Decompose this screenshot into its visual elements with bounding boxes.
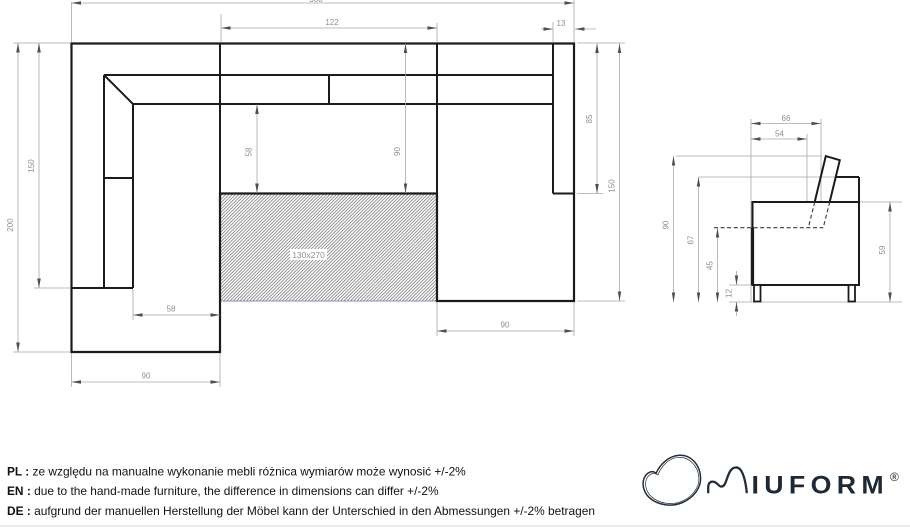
svg-text:85: 85 [585, 114, 594, 123]
svg-text:300: 300 [309, 0, 323, 4]
svg-text:EN : due to the hand-made furn: EN : due to the hand-made furniture, the… [7, 484, 439, 498]
svg-text:90: 90 [142, 372, 151, 381]
svg-text:12: 12 [725, 289, 734, 298]
svg-text:54: 54 [775, 130, 784, 139]
svg-text:®: ® [890, 470, 899, 484]
svg-text:90: 90 [393, 147, 402, 156]
svg-text:IUFORM: IUFORM [752, 472, 890, 500]
svg-text:59: 59 [878, 245, 887, 254]
svg-text:90: 90 [501, 321, 510, 330]
svg-text:58: 58 [167, 305, 176, 314]
svg-text:150: 150 [27, 159, 36, 173]
svg-text:90: 90 [662, 220, 671, 229]
svg-text:13: 13 [557, 19, 566, 28]
svg-text:66: 66 [782, 114, 791, 123]
svg-text:PL : ze względu na manualne wy: PL : ze względu na manualne wykonanie me… [7, 464, 466, 478]
svg-text:58: 58 [245, 147, 254, 156]
svg-text:67: 67 [687, 235, 696, 244]
svg-text:122: 122 [325, 18, 339, 27]
svg-text:45: 45 [706, 261, 715, 270]
svg-text:200: 200 [6, 218, 15, 232]
svg-text:DE : aufgrund der manuellen He: DE : aufgrund der manuellen Herstellung … [7, 504, 595, 518]
svg-text:130x270: 130x270 [292, 250, 325, 260]
svg-text:150: 150 [608, 179, 617, 193]
